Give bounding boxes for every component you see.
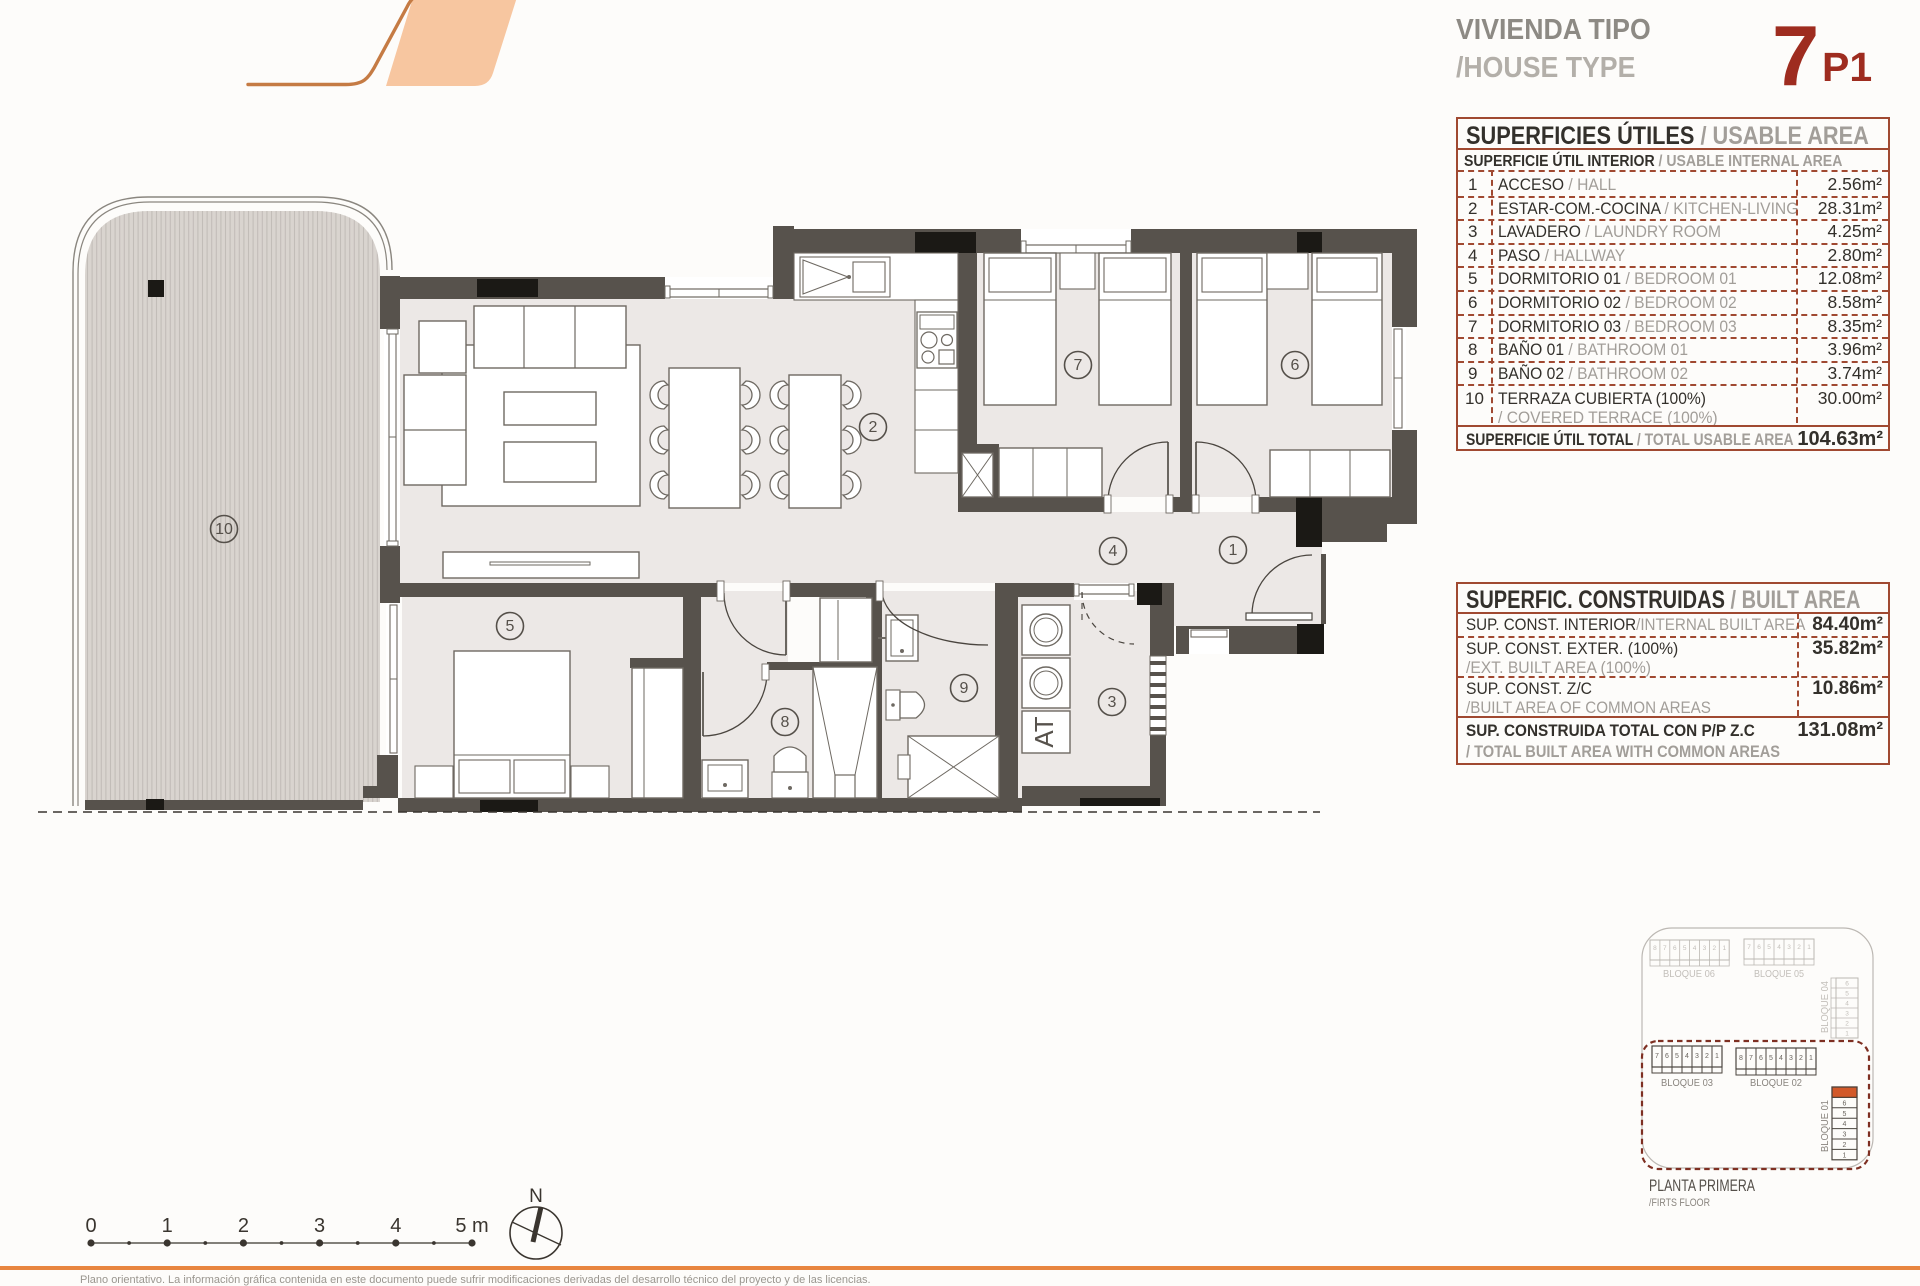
svg-text:4: 4 xyxy=(1693,945,1697,952)
svg-text:6: 6 xyxy=(1665,1053,1669,1060)
svg-text:2: 2 xyxy=(1713,945,1717,952)
svg-text:7: 7 xyxy=(1074,357,1083,374)
svg-text:4: 4 xyxy=(1845,1001,1849,1008)
svg-text:3: 3 xyxy=(1695,1053,1699,1060)
svg-text:AT: AT xyxy=(1029,716,1059,747)
svg-text:4: 4 xyxy=(1779,1055,1783,1062)
svg-text:2: 2 xyxy=(1797,944,1801,951)
svg-text:7: 7 xyxy=(1663,945,1667,952)
svg-text:5: 5 xyxy=(506,618,515,635)
svg-text:1: 1 xyxy=(1843,1152,1847,1159)
svg-text:1: 1 xyxy=(1722,945,1726,952)
svg-text:5: 5 xyxy=(1675,1053,1679,1060)
svg-text:3: 3 xyxy=(1845,1011,1849,1018)
svg-text:N: N xyxy=(529,1186,543,1207)
svg-text:5: 5 xyxy=(1767,944,1771,951)
svg-text:BLOQUE 02: BLOQUE 02 xyxy=(1750,1077,1802,1089)
svg-text:/FIRTS FLOOR: /FIRTS FLOOR xyxy=(1649,1197,1710,1209)
svg-text:BLOQUE 03: BLOQUE 03 xyxy=(1661,1077,1713,1089)
svg-text:4: 4 xyxy=(1685,1053,1689,1060)
svg-text:10: 10 xyxy=(215,521,233,538)
svg-text:3: 3 xyxy=(1789,1055,1793,1062)
svg-text:7: 7 xyxy=(1747,944,1751,951)
svg-text:5: 5 xyxy=(1843,1111,1847,1118)
svg-text:7: 7 xyxy=(1749,1055,1753,1062)
svg-text:3: 3 xyxy=(1108,694,1117,711)
svg-text:BLOQUE 01: BLOQUE 01 xyxy=(1819,1100,1831,1152)
svg-text:2: 2 xyxy=(869,419,878,436)
svg-text:6: 6 xyxy=(1843,1100,1847,1107)
svg-text:5: 5 xyxy=(1845,991,1849,998)
svg-text:BLOQUE 05: BLOQUE 05 xyxy=(1754,968,1804,980)
svg-text:3: 3 xyxy=(314,1215,325,1237)
svg-text:PLANTA PRIMERA: PLANTA PRIMERA xyxy=(1649,1176,1755,1195)
svg-text:9: 9 xyxy=(960,680,969,697)
svg-text:2: 2 xyxy=(238,1215,249,1237)
svg-text:5: 5 xyxy=(1769,1055,1773,1062)
svg-text:1: 1 xyxy=(162,1215,173,1237)
svg-text:2: 2 xyxy=(1845,1021,1849,1028)
svg-text:4: 4 xyxy=(1843,1121,1847,1128)
svg-text:1: 1 xyxy=(1807,944,1811,951)
svg-text:8: 8 xyxy=(1739,1055,1743,1062)
svg-text:6: 6 xyxy=(1759,1055,1763,1062)
svg-text:3: 3 xyxy=(1843,1132,1847,1139)
svg-text:6: 6 xyxy=(1291,357,1300,374)
svg-text:2: 2 xyxy=(1843,1142,1847,1149)
svg-text:7: 7 xyxy=(1655,1053,1659,1060)
svg-text:1: 1 xyxy=(1845,1031,1849,1038)
svg-text:6: 6 xyxy=(1845,981,1849,988)
svg-text:5 m: 5 m xyxy=(455,1215,488,1237)
svg-text:2: 2 xyxy=(1799,1055,1803,1062)
svg-text:8: 8 xyxy=(1653,945,1657,952)
svg-text:3: 3 xyxy=(1787,944,1791,951)
svg-text:1: 1 xyxy=(1229,542,1238,559)
svg-text:BLOQUE 04: BLOQUE 04 xyxy=(1819,981,1831,1033)
svg-text:4: 4 xyxy=(1777,944,1781,951)
svg-text:2: 2 xyxy=(1705,1053,1709,1060)
svg-text:4: 4 xyxy=(1109,543,1118,560)
svg-text:5: 5 xyxy=(1683,945,1687,952)
svg-text:6: 6 xyxy=(1673,945,1677,952)
svg-text:4: 4 xyxy=(390,1215,401,1237)
svg-text:0: 0 xyxy=(85,1215,96,1237)
svg-text:8: 8 xyxy=(781,714,790,731)
svg-text:1: 1 xyxy=(1809,1055,1813,1062)
svg-text:1: 1 xyxy=(1715,1053,1719,1060)
svg-text:3: 3 xyxy=(1703,945,1707,952)
svg-text:BLOQUE 06: BLOQUE 06 xyxy=(1663,968,1715,980)
svg-text:6: 6 xyxy=(1757,944,1761,951)
